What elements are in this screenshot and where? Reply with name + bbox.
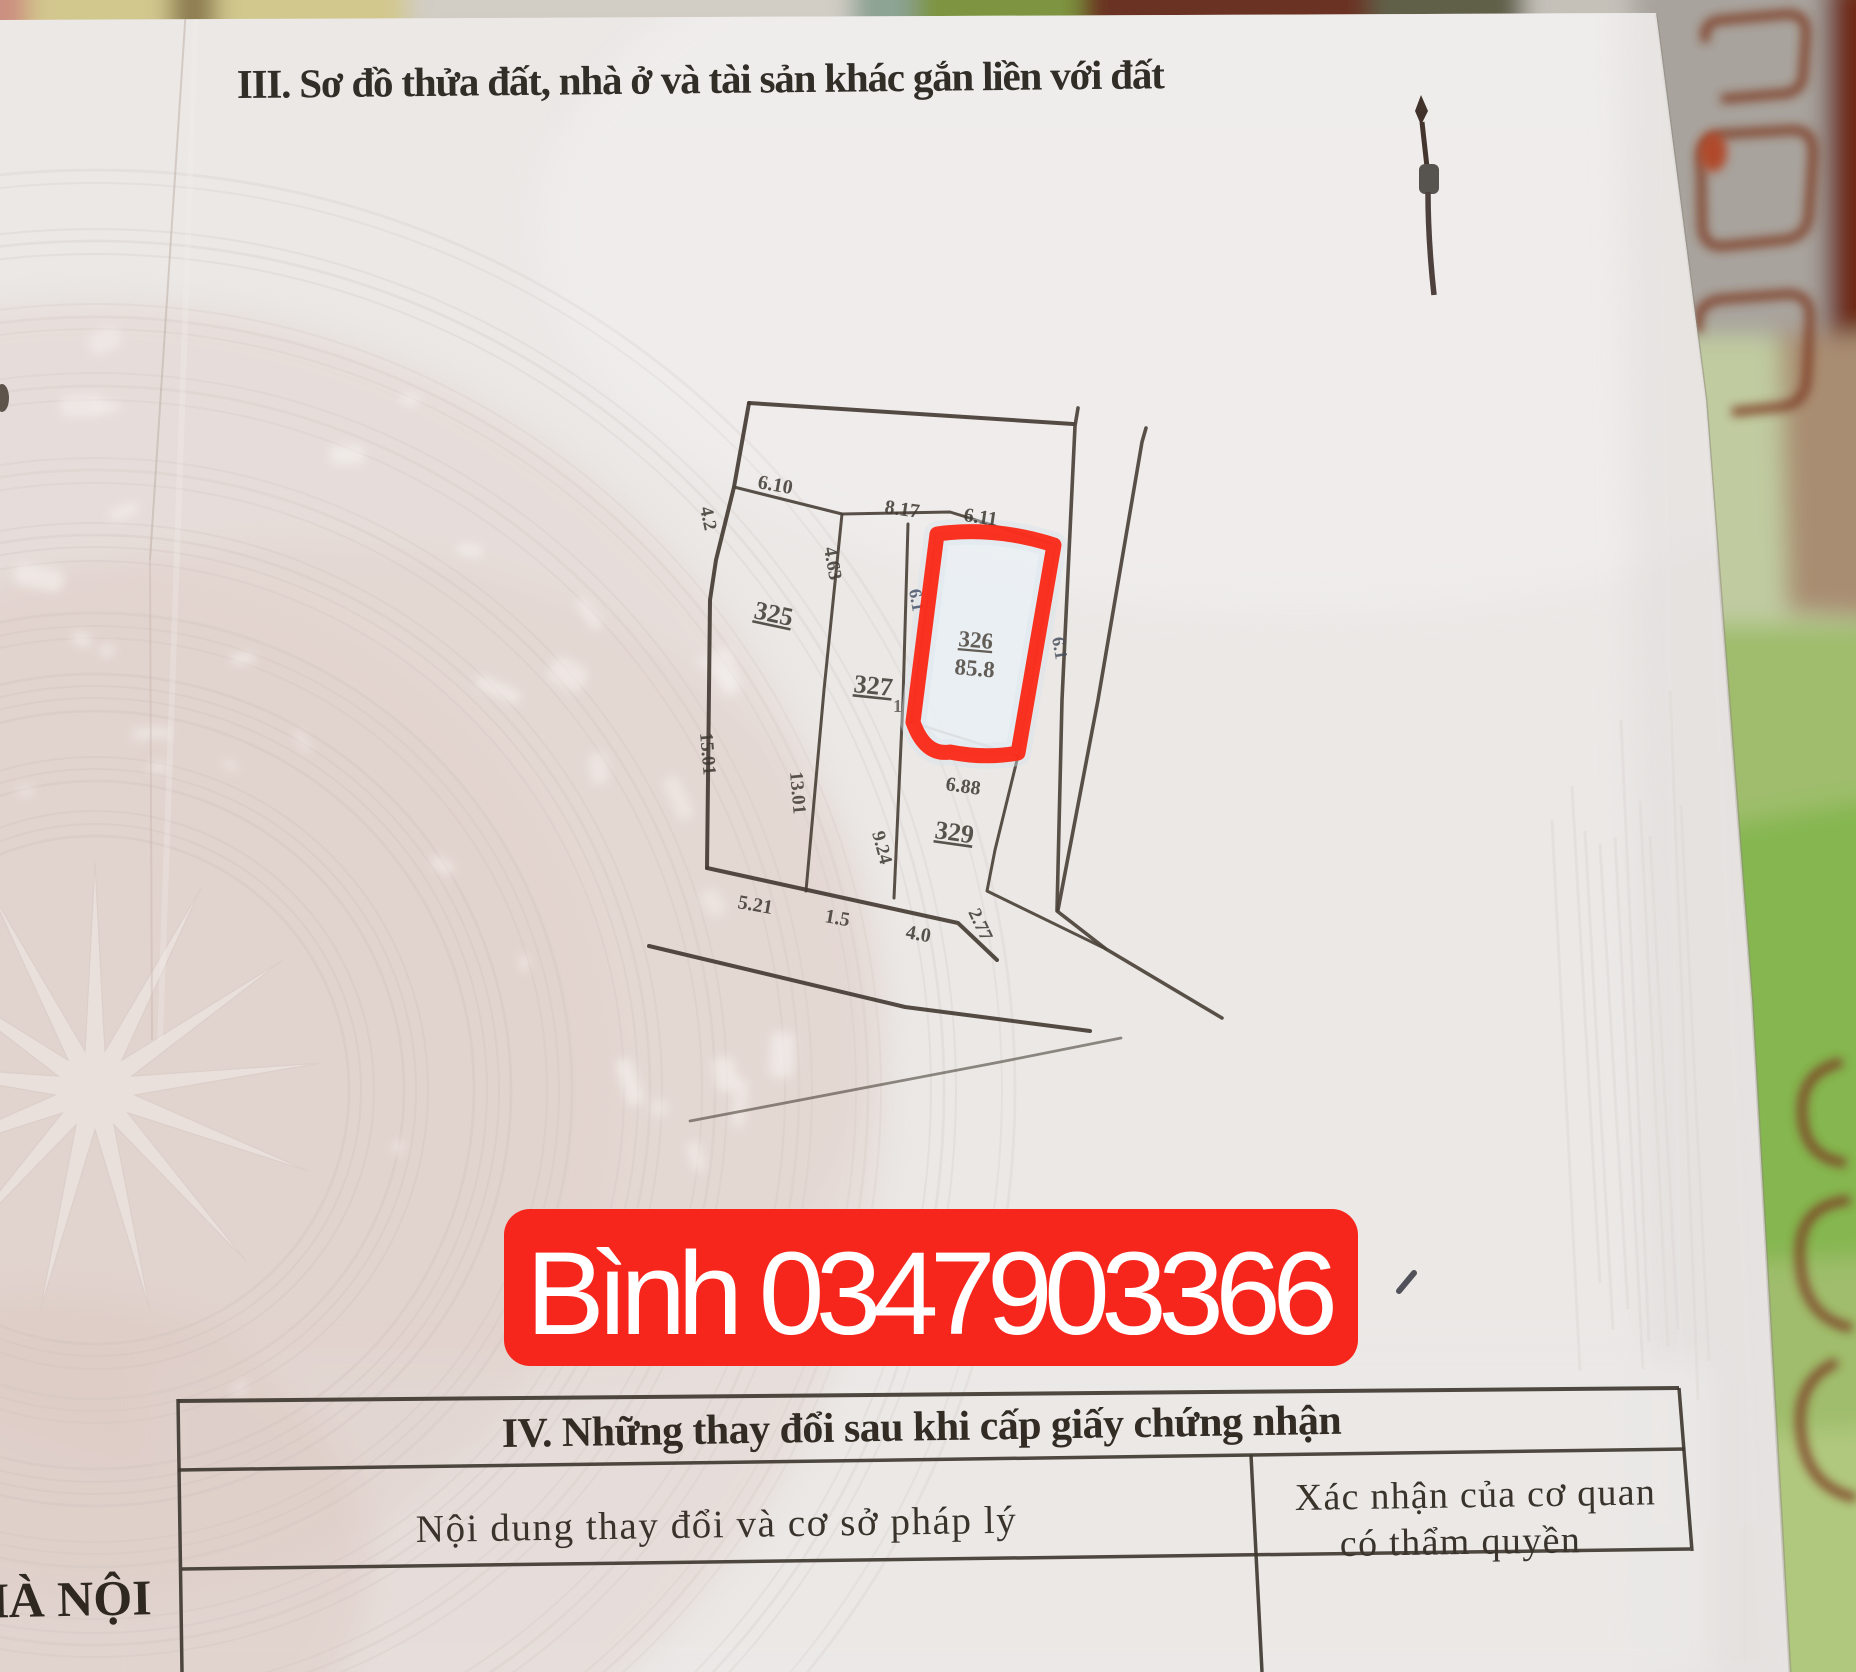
svg-text:329: 329 xyxy=(933,815,976,849)
svg-text:1: 1 xyxy=(893,696,902,716)
svg-text:Xác nhận của cơ quan: Xác nhận của cơ quan xyxy=(1294,1471,1655,1519)
svg-text:có thẩm quyền: có thẩm quyền xyxy=(1339,1519,1580,1565)
svg-text:15.01: 15.01 xyxy=(695,732,720,776)
svg-text:III. Sơ đồ thửa đất, nhà ở và: III. Sơ đồ thửa đất, nhà ở và tài sản kh… xyxy=(237,51,1166,107)
svg-text:327: 327 xyxy=(852,669,894,702)
svg-text:4.0: 4.0 xyxy=(904,921,932,947)
svg-text:HÀ NỘI: HÀ NỘI xyxy=(0,1569,152,1629)
svg-text:Bình 0347903366: Bình 0347903366 xyxy=(526,1228,1338,1360)
svg-text:326: 326 xyxy=(958,626,995,654)
svg-text:13.01: 13.01 xyxy=(785,771,810,815)
svg-text:1.5: 1.5 xyxy=(823,905,851,931)
svg-text:6.1: 6.1 xyxy=(1048,635,1072,661)
svg-text:85.8: 85.8 xyxy=(954,654,996,682)
